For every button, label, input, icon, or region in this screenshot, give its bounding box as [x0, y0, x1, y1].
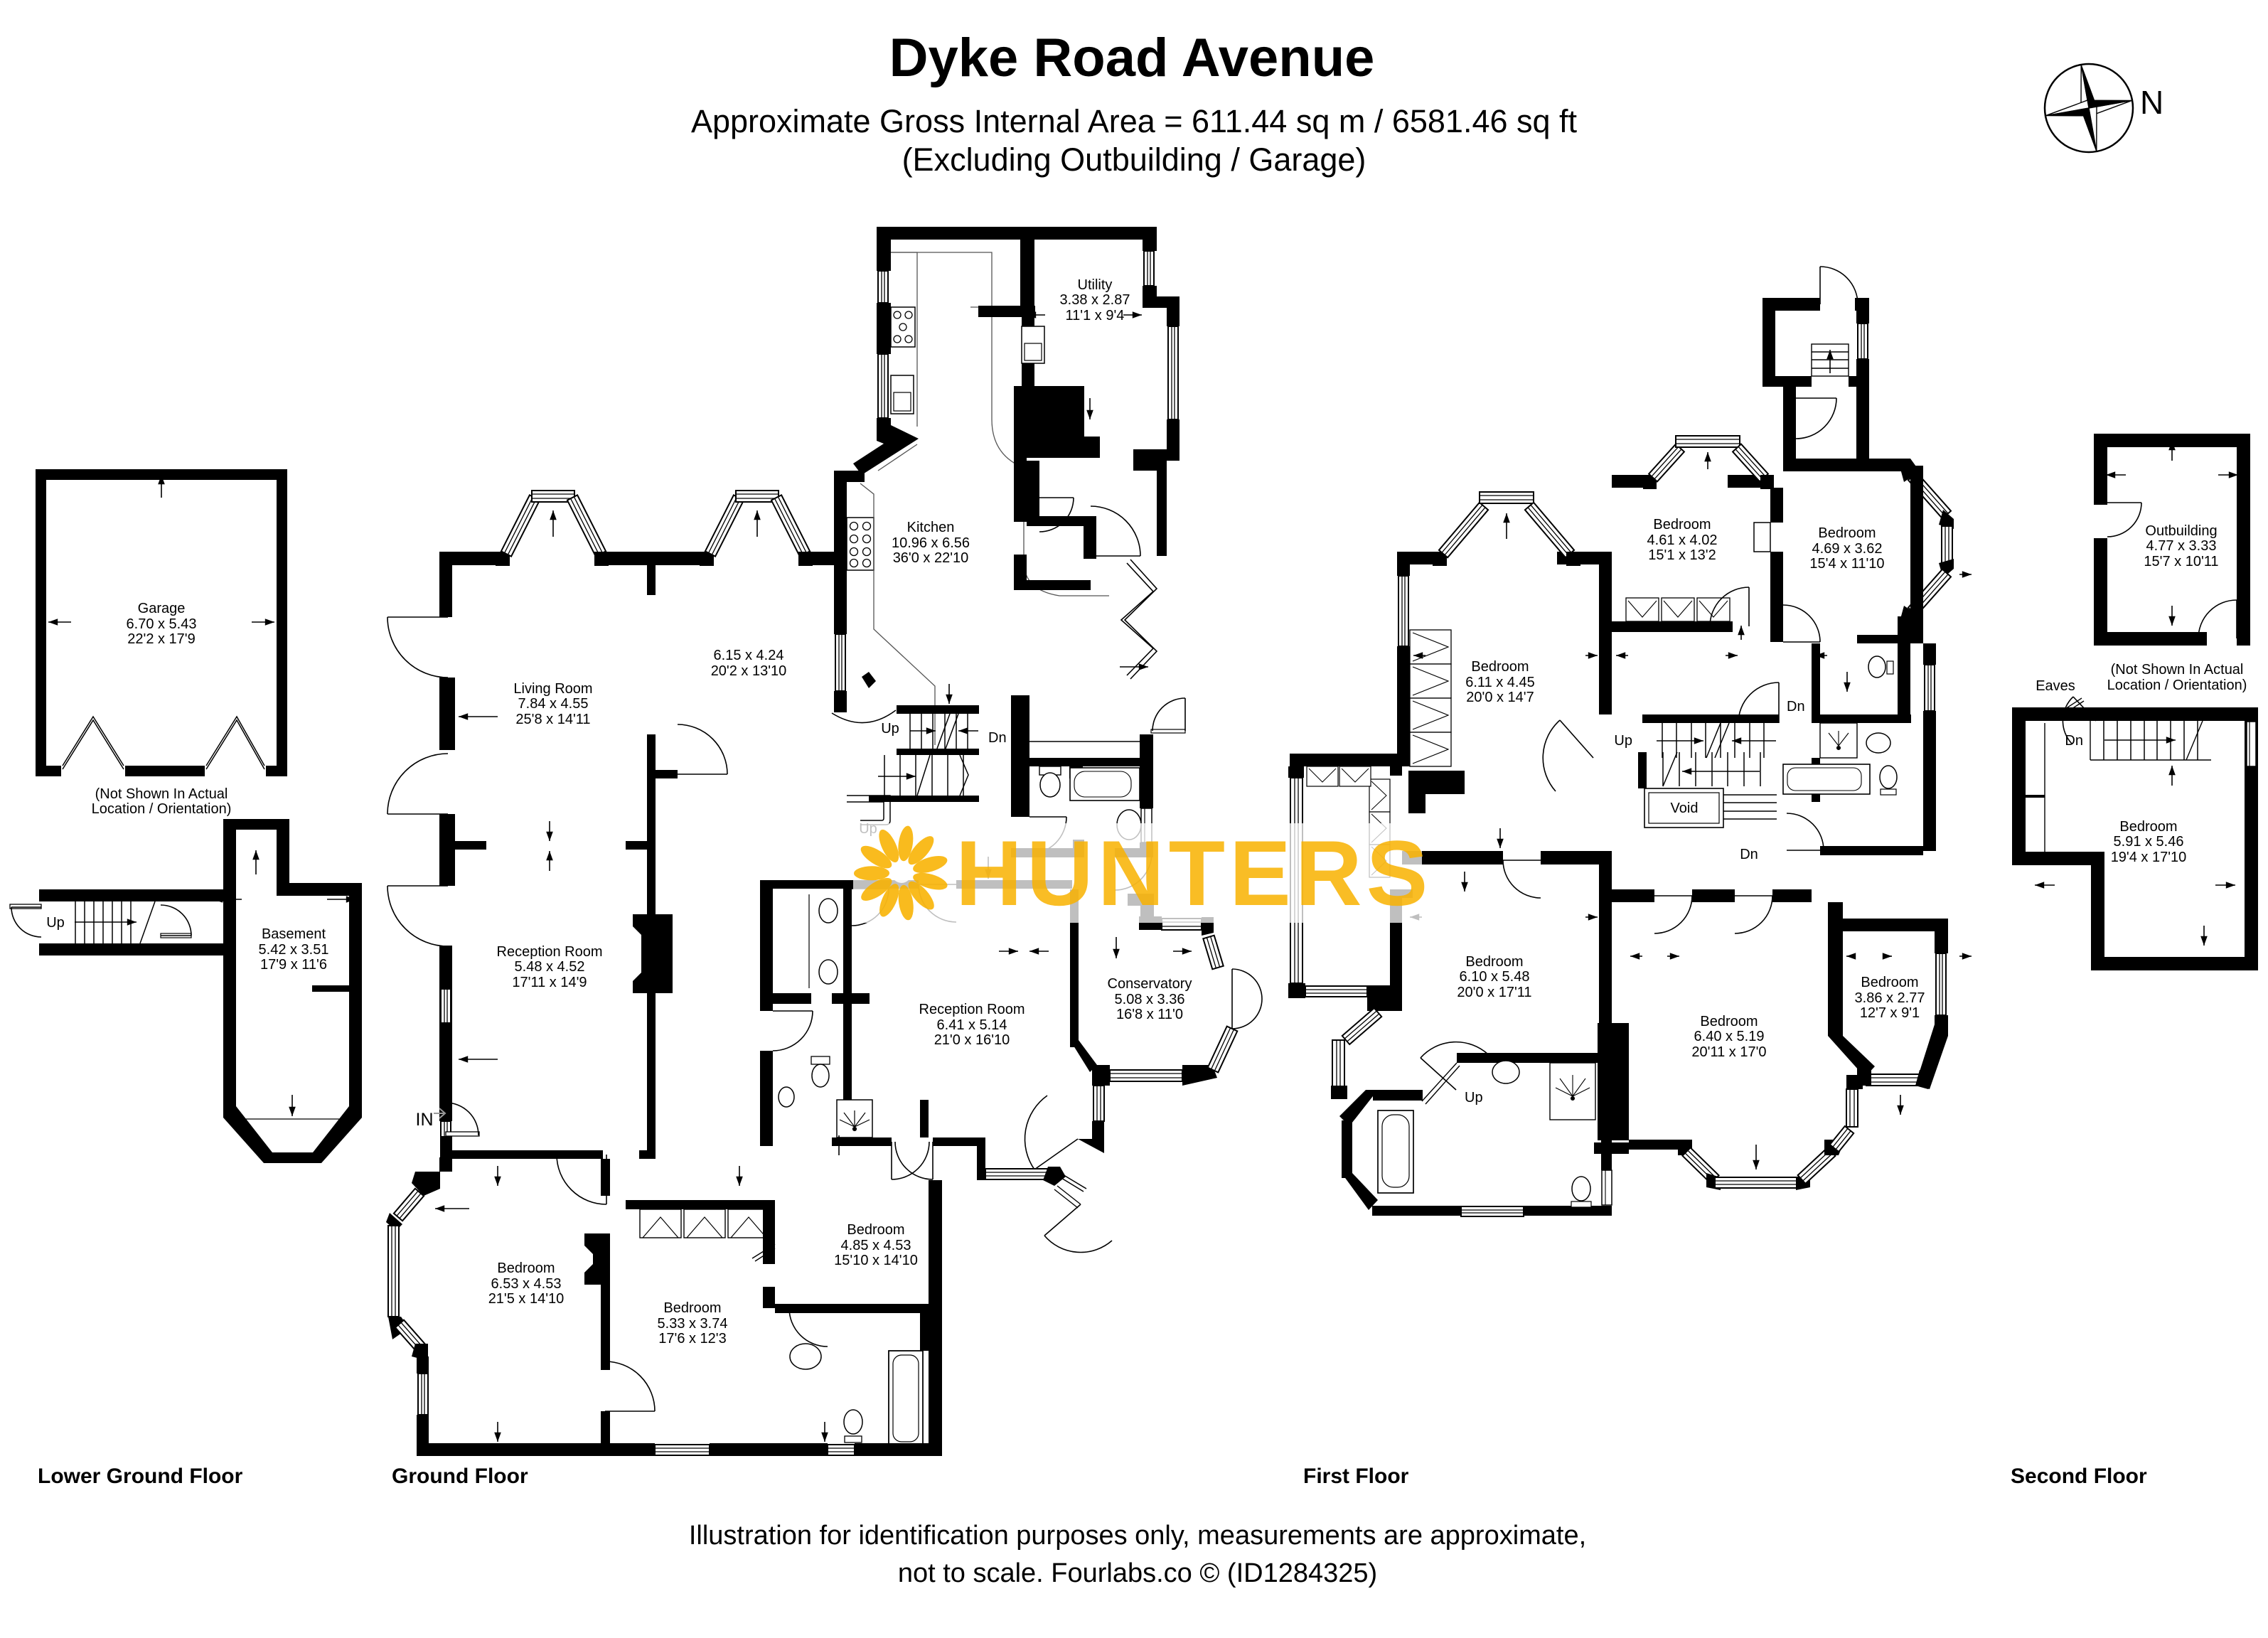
svg-text:20'2 x 13'10: 20'2 x 13'10 [711, 663, 787, 679]
svg-text:Living Room: Living Room [513, 681, 592, 697]
svg-text:11'1 x 9'4: 11'1 x 9'4 [1066, 308, 1125, 323]
svg-text:Void: Void [1671, 801, 1699, 816]
svg-text:17'11 x 14'9: 17'11 x 14'9 [512, 975, 587, 990]
svg-text:6.15 x 4.24: 6.15 x 4.24 [714, 648, 784, 663]
svg-text:17'6 x 12'3: 17'6 x 12'3 [658, 1331, 727, 1347]
svg-text:6.40 x 5.19: 6.40 x 5.19 [1694, 1029, 1765, 1044]
svg-text:7.84 x 4.55: 7.84 x 4.55 [518, 696, 589, 712]
svg-text:Reception Room: Reception Room [919, 1002, 1025, 1017]
svg-text:17'9 x 11'6: 17'9 x 11'6 [260, 957, 327, 973]
svg-text:20'0 x 17'11: 20'0 x 17'11 [1457, 985, 1531, 1000]
svg-text:Dn: Dn [1740, 847, 1758, 862]
svg-text:Dn: Dn [2065, 733, 2083, 749]
svg-text:Illustration for identificatio: Illustration for identification purposes… [689, 1521, 1586, 1551]
svg-text:15'7 x 10'11: 15'7 x 10'11 [2144, 554, 2218, 569]
svg-text:(Not Shown In Actual: (Not Shown In Actual [2111, 662, 2244, 678]
svg-text:20'11 x 17'0: 20'11 x 17'0 [1691, 1044, 1766, 1060]
svg-text:(Not Shown In Actual: (Not Shown In Actual [95, 786, 228, 802]
svg-text:6.10 x 5.48: 6.10 x 5.48 [1460, 969, 1530, 985]
svg-text:5.91 x 5.46: 5.91 x 5.46 [2114, 834, 2184, 850]
svg-text:Utility: Utility [1078, 277, 1113, 293]
svg-text:Reception Room: Reception Room [497, 944, 603, 960]
svg-text:Basement: Basement [262, 926, 326, 942]
svg-text:Conservatory: Conservatory [1108, 976, 1192, 992]
svg-text:6.70 x 5.43: 6.70 x 5.43 [127, 616, 197, 632]
svg-text:4.77 x 3.33: 4.77 x 3.33 [2146, 538, 2217, 554]
svg-text:4.85 x 4.53: 4.85 x 4.53 [841, 1238, 911, 1253]
svg-text:Location / Orientation): Location / Orientation) [2107, 678, 2247, 693]
svg-text:Up: Up [1465, 1090, 1483, 1106]
svg-text:21'5 x 14'10: 21'5 x 14'10 [488, 1291, 565, 1307]
svg-text:Bedroom: Bedroom [1700, 1014, 1758, 1029]
svg-text:5.42 x 3.51: 5.42 x 3.51 [259, 942, 329, 958]
svg-text:4.69 x 3.62: 4.69 x 3.62 [1812, 541, 1883, 557]
svg-text:6.53 x 4.53: 6.53 x 4.53 [491, 1276, 562, 1292]
svg-text:Bedroom: Bedroom [1471, 659, 1529, 675]
svg-text:not to scale. Fourlabs.co © (I: not to scale. Fourlabs.co © (ID1284325) [898, 1558, 1377, 1588]
svg-text:Kitchen: Kitchen [907, 520, 955, 535]
svg-text:Dn: Dn [988, 730, 1007, 746]
svg-text:22'2 x 17'9: 22'2 x 17'9 [127, 631, 196, 647]
svg-text:Up: Up [881, 721, 899, 737]
svg-text:First Floor: First Floor [1303, 1465, 1409, 1488]
svg-text:5.33 x 3.74: 5.33 x 3.74 [658, 1316, 728, 1332]
svg-text:12'7 x 9'1: 12'7 x 9'1 [1860, 1005, 1920, 1021]
svg-text:N: N [2140, 84, 2163, 121]
svg-text:Bedroom: Bedroom [2119, 819, 2177, 835]
svg-text:6.41 x 5.14: 6.41 x 5.14 [937, 1017, 1007, 1033]
svg-text:Outbuilding: Outbuilding [2145, 523, 2217, 539]
svg-text:36'0 x 22'10: 36'0 x 22'10 [893, 550, 969, 566]
svg-text:Bedroom: Bedroom [1818, 525, 1876, 541]
svg-text:15'1 x 13'2: 15'1 x 13'2 [1648, 547, 1716, 563]
svg-text:Up: Up [1614, 733, 1632, 749]
svg-text:21'0 x 16'10: 21'0 x 16'10 [934, 1032, 1010, 1048]
svg-text:Eaves: Eaves [2036, 678, 2075, 694]
svg-text:(Excluding Outbuilding / Garag: (Excluding Outbuilding / Garage) [902, 141, 1366, 178]
svg-text:Approximate Gross Internal Are: Approximate Gross Internal Area = 611.44… [691, 103, 1578, 139]
svg-text:Dn: Dn [1787, 699, 1805, 714]
svg-text:Ground Floor: Ground Floor [392, 1465, 528, 1488]
svg-text:15'4 x 11'10: 15'4 x 11'10 [1809, 556, 1884, 572]
svg-text:Lower Ground Floor: Lower Ground Floor [38, 1465, 243, 1488]
svg-text:5.48 x 4.52: 5.48 x 4.52 [515, 959, 585, 975]
svg-text:Location / Orientation): Location / Orientation) [92, 801, 232, 817]
svg-text:Bedroom: Bedroom [1861, 975, 1918, 990]
svg-text:15'10 x 14'10: 15'10 x 14'10 [834, 1253, 918, 1268]
svg-text:16'8 x 11'0: 16'8 x 11'0 [1116, 1007, 1183, 1022]
svg-text:10.96 x 6.56: 10.96 x 6.56 [892, 535, 970, 551]
svg-text:Second Floor: Second Floor [2011, 1465, 2147, 1488]
svg-text:5.08 x 3.36: 5.08 x 3.36 [1115, 992, 1185, 1007]
svg-text:Bedroom: Bedroom [497, 1260, 555, 1276]
svg-text:Bedroom: Bedroom [847, 1222, 904, 1238]
svg-text:Dyke Road Avenue: Dyke Road Avenue [889, 28, 1375, 88]
svg-text:25'8 x 14'11: 25'8 x 14'11 [515, 712, 590, 727]
svg-text:3.86 x 2.77: 3.86 x 2.77 [1855, 990, 1925, 1006]
svg-text:3.38 x 2.87: 3.38 x 2.87 [1060, 292, 1130, 308]
svg-text:4.61 x 4.02: 4.61 x 4.02 [1647, 532, 1718, 548]
svg-text:Up: Up [46, 915, 65, 931]
svg-text:IN: IN [416, 1110, 434, 1130]
svg-text:Bedroom: Bedroom [1653, 517, 1711, 532]
svg-text:Garage: Garage [138, 601, 186, 616]
svg-text:19'4 x 17'10: 19'4 x 17'10 [2111, 850, 2187, 865]
svg-text:20'0 x 14'7: 20'0 x 14'7 [1466, 690, 1534, 705]
svg-text:6.11 x 4.45: 6.11 x 4.45 [1465, 675, 1534, 690]
svg-text:Bedroom: Bedroom [663, 1300, 721, 1316]
svg-text:HUNTERS: HUNTERS [956, 821, 1432, 925]
svg-text:Bedroom: Bedroom [1465, 954, 1523, 970]
